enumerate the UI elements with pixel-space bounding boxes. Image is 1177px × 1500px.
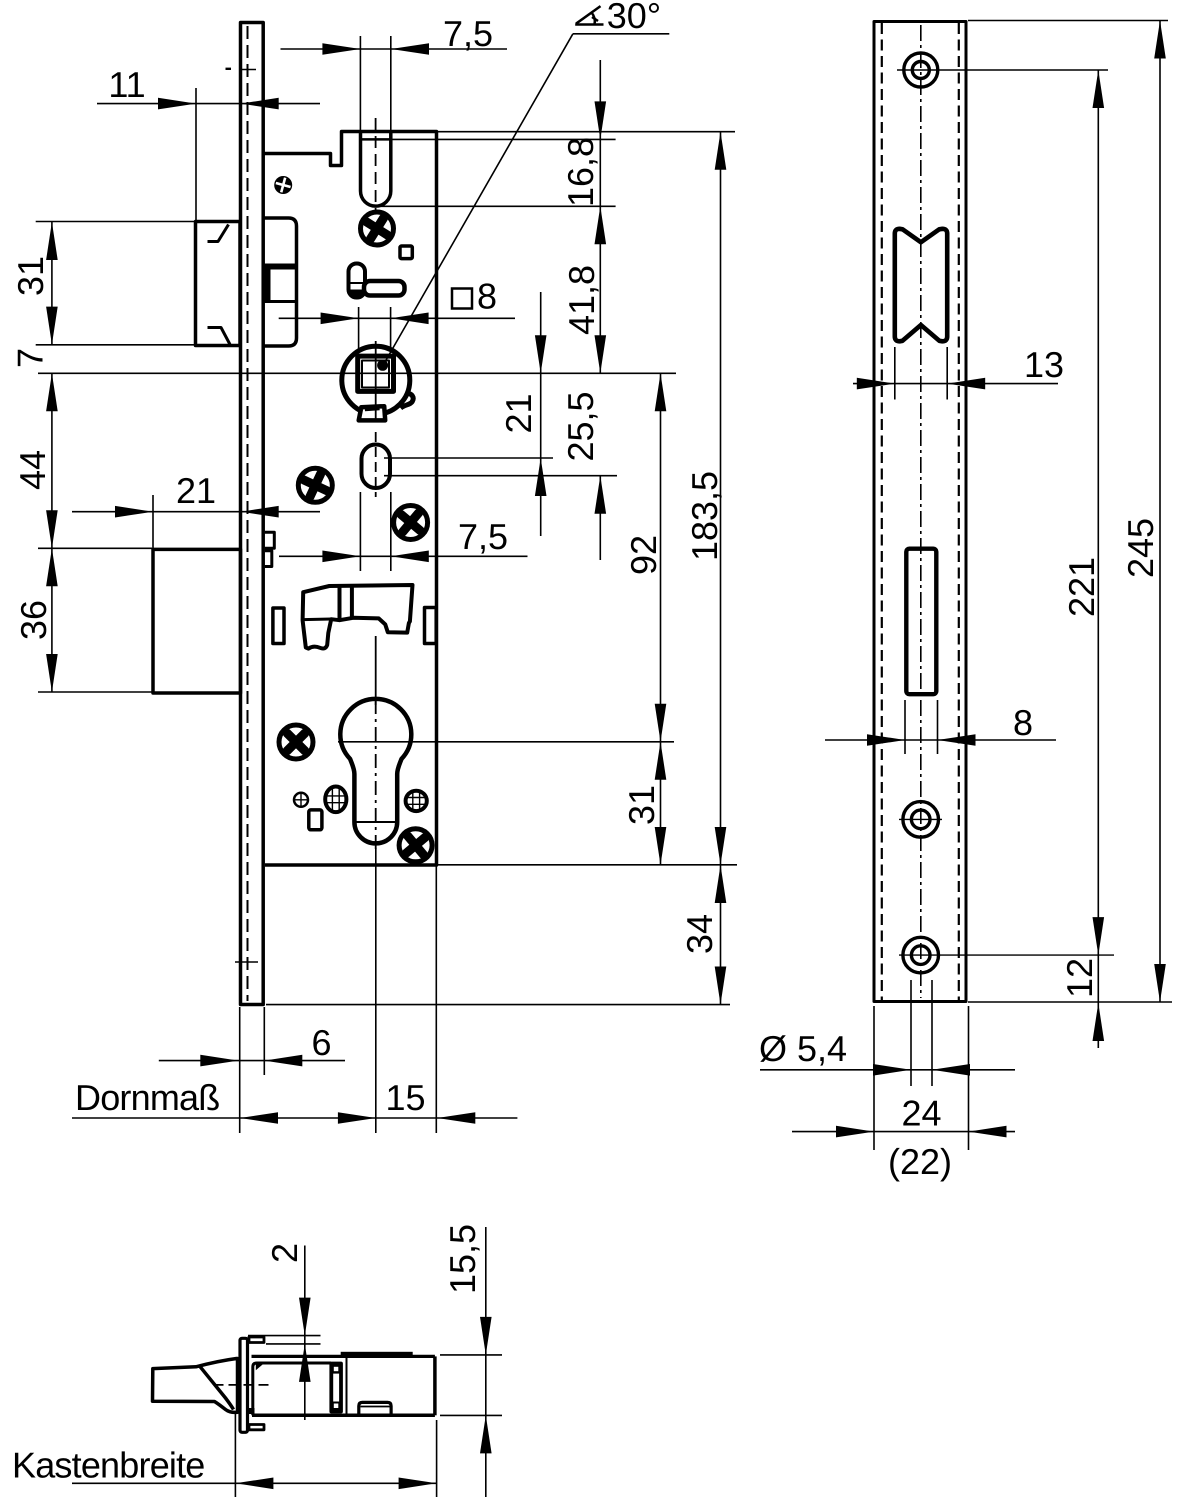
svg-text:2: 2: [264, 1243, 305, 1263]
svg-text:25,5: 25,5: [560, 391, 601, 461]
svg-text:Dornmaß: Dornmaß: [75, 1077, 219, 1118]
svg-text:31: 31: [10, 256, 51, 296]
svg-text:8: 8: [1013, 702, 1033, 743]
svg-text:24: 24: [901, 1093, 941, 1134]
svg-text:21: 21: [176, 470, 216, 511]
svg-text:7,5: 7,5: [458, 516, 508, 557]
svg-text:41,8: 41,8: [561, 265, 602, 335]
svg-text:(22): (22): [888, 1141, 952, 1182]
svg-text:8: 8: [477, 276, 497, 317]
svg-text:221: 221: [1061, 557, 1102, 617]
svg-text:44: 44: [12, 450, 53, 490]
svg-text:245: 245: [1120, 518, 1161, 578]
svg-text:31: 31: [621, 785, 662, 825]
svg-text:15,5: 15,5: [442, 1224, 483, 1294]
svg-text:Ø 5,4: Ø 5,4: [759, 1028, 847, 1069]
svg-text:Kastenbreite: Kastenbreite: [12, 1445, 205, 1486]
svg-text:34: 34: [679, 914, 720, 954]
svg-text:36: 36: [13, 600, 54, 640]
svg-text:15: 15: [385, 1077, 425, 1118]
svg-text:6: 6: [311, 1022, 331, 1063]
svg-text:12: 12: [1059, 958, 1100, 998]
svg-text:183,5: 183,5: [684, 471, 725, 561]
svg-text:7: 7: [10, 348, 51, 368]
svg-text:92: 92: [623, 535, 664, 575]
svg-text:13: 13: [1024, 344, 1064, 385]
svg-text:30°: 30°: [607, 0, 661, 36]
svg-text:16,8: 16,8: [560, 137, 601, 207]
svg-text:21: 21: [498, 393, 539, 433]
svg-text:7,5: 7,5: [443, 13, 493, 54]
svg-text:11: 11: [108, 64, 145, 105]
